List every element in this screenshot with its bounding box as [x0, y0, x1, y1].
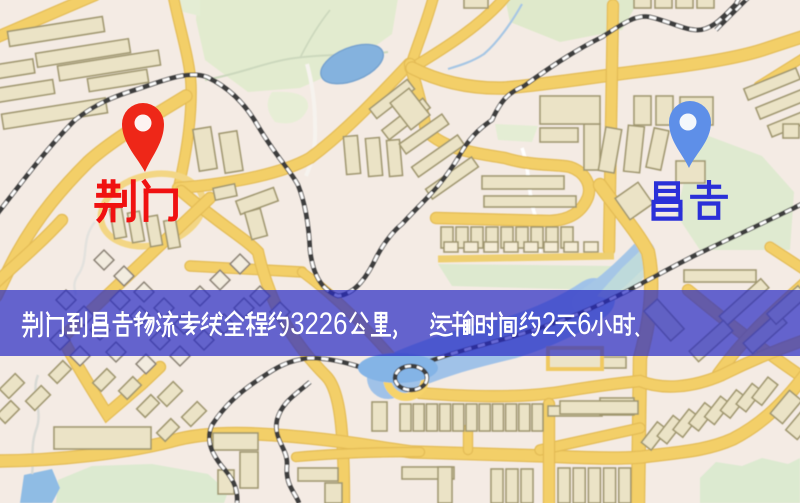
svg-text:3226: 3226: [290, 307, 347, 342]
svg-text:2: 2: [542, 307, 556, 342]
svg-text:6: 6: [577, 307, 591, 342]
